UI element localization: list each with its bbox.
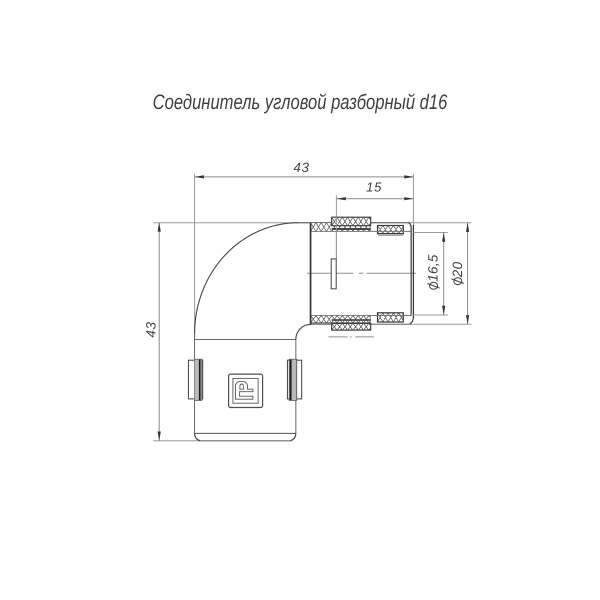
svg-text:43: 43 xyxy=(293,160,309,175)
svg-text:43: 43 xyxy=(144,321,159,337)
svg-text:16,5: 16,5 xyxy=(426,254,441,282)
svg-text:Соединитель угловой разборный: Соединитель угловой разборный d16 xyxy=(153,91,448,114)
svg-text:15: 15 xyxy=(366,180,382,195)
svg-text:20: 20 xyxy=(450,261,465,278)
